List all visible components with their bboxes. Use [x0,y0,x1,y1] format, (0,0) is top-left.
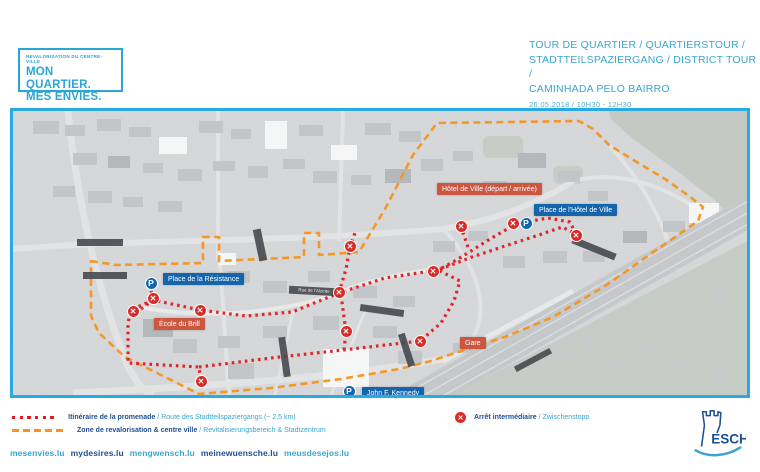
street-label-rue-de-l-alzette: Rue de l'Alzette [289,286,339,297]
route-dot [12,416,15,419]
map-label-hotel-de-ville-depart: Hôtel de Ville (départ / arrivée) [437,183,542,195]
parking-marker: P [343,385,356,398]
legend-zone-row: Zone de revalorisation & centre ville / … [12,427,326,434]
esch-city-logo: ESCH [688,404,746,464]
zone-dash [12,429,19,432]
legend-stop-fr: Arrêt intermédiaire [474,414,537,421]
legend-route-dots [12,416,58,419]
legend-zone-fr: Zone de revalorisation & centre ville [77,427,197,434]
brand-box: REVALORISATION DU CENTRE-VILLE MON QUART… [18,48,123,92]
zone-dash [56,429,63,432]
footer-link-mesenvies-lu: mesenvies.lu [10,448,65,458]
map-label-place-hotel-de-ville: Place de l'Hôtel de Ville [534,204,617,216]
footer-link-meusdesejos-lu: meusdesejos.lu [284,448,349,458]
map-label-place-de-la-resistance: Place de la Résistance [163,273,244,285]
intermediate-stop-marker: ✕ [195,375,208,388]
legend-route-de: Route des Stadtteilspaziergangs (~ 2,5 k… [161,414,295,421]
route-dot [35,416,38,419]
esch-logo-wave [696,448,740,456]
zone-dash [34,429,41,432]
intermediate-stop-marker: ✕ [414,335,427,348]
zone-dash [45,429,52,432]
intermediate-stop-marker: ✕ [344,240,357,253]
brand-line1: MON QUARTIER. [26,66,115,91]
intermediate-stop-marker: ✕ [570,229,583,242]
intermediate-stop-marker: ✕ [427,265,440,278]
aerial-map: ✕✕✕✕✕✕✕✕✕✕✕✕PPPHôtel de Ville (départ / … [10,108,750,398]
brand-eyebrow: REVALORISATION DU CENTRE-VILLE [26,54,115,64]
title-line-3: CAMINHADA PELO BAIRRO [529,82,757,97]
title-line-1: TOUR DE QUARTIER / QUARTIERSTOUR / [529,38,757,53]
intermediate-stop-marker: ✕ [127,305,140,318]
legend-zone-dashes [12,429,67,432]
legend-zone-de: Revitalisierungsbereich & Stadtzentrum [203,427,326,434]
route-dot [43,416,46,419]
intermediate-stop-marker: ✕ [194,304,207,317]
route-dot [20,416,23,419]
zone-dash [23,429,30,432]
street-label-bar [398,333,415,367]
street-label-bar [360,304,405,317]
street-label-bar [83,272,127,279]
event-title-block: TOUR DE QUARTIER / QUARTIERSTOUR / STADT… [529,38,757,109]
legend-route-row: Itinéraire de la promenade / Route des S… [12,414,296,421]
legend-sep: / [539,414,541,421]
street-label-bar [77,239,123,246]
intermediate-stop-marker: ✕ [147,292,160,305]
legend-sep: / [157,414,159,421]
intermediate-stop-marker: ✕ [333,286,346,299]
footer-link-mydesires-lu: mydesires.lu [71,448,124,458]
map-overlay-layer: ✕✕✕✕✕✕✕✕✕✕✕✕PPPHôtel de Ville (départ / … [13,111,747,395]
title-line-2: STADTTEILSPAZIERGANG / DISTRICT TOUR / [529,53,757,82]
parking-marker: P [145,277,158,290]
footer-links: mesenvies.lumydesires.lumengwensch.lumei… [10,448,355,458]
map-label-ecole-du-brill: École du Brill [154,318,205,330]
legend-stop-icon: ✕ [455,412,466,423]
map-label-john-f-kennedy: John F. Kennedy [362,387,424,398]
street-label-bar [514,348,552,372]
legend-stop-row: ✕ Arrêt intermédiaire / Zwischenstopp [455,412,589,423]
map-label-gare: Gare [460,337,486,349]
intermediate-stop-marker: ✕ [507,217,520,230]
parking-marker: P [520,217,533,230]
footer-link-mengwensch-lu: mengwensch.lu [130,448,195,458]
brand-line2: MES ENVIES. [26,91,115,104]
street-label-bar [253,229,267,262]
legend-sep: / [199,427,201,434]
legend-stop-de: Zwischenstopp [543,414,590,421]
esch-logo-text: ESCH [711,432,746,447]
street-label-bar [278,337,290,378]
legend-route-fr: Itinéraire de la promenade [68,414,155,421]
intermediate-stop-marker: ✕ [455,220,468,233]
route-dot [27,416,30,419]
intermediate-stop-marker: ✕ [340,325,353,338]
footer-link-meinewuensche-lu: meinewuensche.lu [201,448,278,458]
route-dot [50,416,53,419]
